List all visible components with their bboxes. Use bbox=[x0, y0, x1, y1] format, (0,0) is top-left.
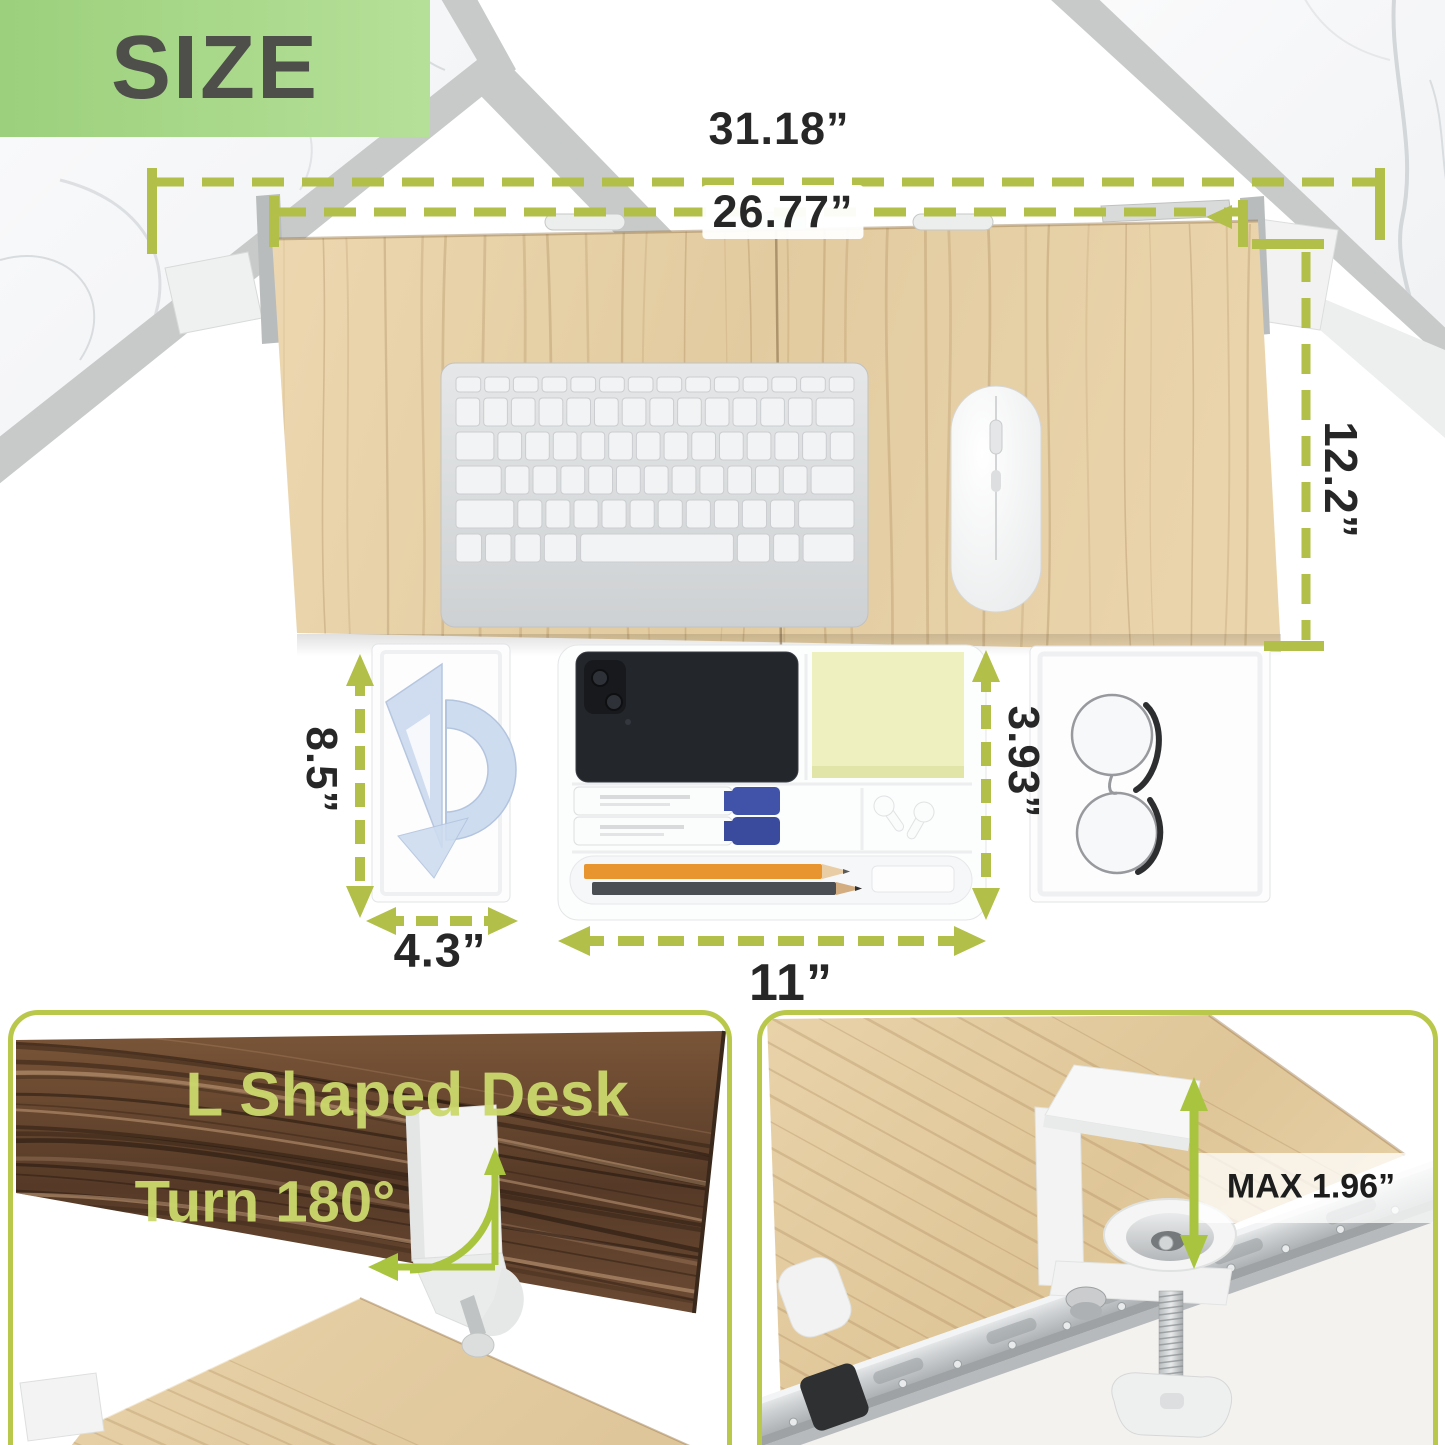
eraser-illustration bbox=[872, 866, 954, 892]
size-badge: SIZE bbox=[0, 0, 430, 137]
dim-center-drawer-depth-label: 3.93” bbox=[998, 706, 1048, 819]
turn-180-caption: Turn 180° bbox=[135, 1169, 396, 1236]
dim-tray-depth-label: 12.2” bbox=[1314, 421, 1368, 539]
dim-side-drawer-depth-label: 8.5” bbox=[296, 726, 346, 813]
right-drawer-illustration bbox=[1030, 646, 1270, 902]
dim-inner-width-label: 26.77” bbox=[702, 185, 863, 239]
size-title: SIZE bbox=[111, 17, 319, 120]
dim-overall-width-label: 31.18” bbox=[708, 103, 849, 155]
clamp-detail-scene bbox=[762, 1015, 1433, 1445]
organizer-drawer-illustration bbox=[558, 645, 986, 920]
dim-center-drawer-width-label: 11” bbox=[749, 953, 833, 1013]
tray-corner-bracket bbox=[20, 1373, 104, 1441]
keyboard-tray-size-infographic: SIZE 31.18” 26.77” 12.2” 8.5” 4.3” 11” 3… bbox=[0, 0, 1445, 1445]
l-shaped-desk-caption: L Shaped Desk bbox=[185, 1060, 628, 1131]
clamp-detail-panel: MAX 1.96” bbox=[757, 1010, 1438, 1445]
left-drawer-illustration bbox=[372, 644, 516, 902]
keyboard-illustration bbox=[441, 363, 868, 627]
l-shaped-desk-panel: L Shaped Desk Turn 180° bbox=[8, 1010, 732, 1445]
clamp-max-label: MAX 1.96” bbox=[1227, 1168, 1395, 1207]
sticky-notes-illustration bbox=[812, 652, 964, 778]
phone-illustration bbox=[576, 652, 798, 782]
mouse-illustration bbox=[951, 386, 1041, 612]
dim-side-drawer-width-label: 4.3” bbox=[394, 923, 487, 978]
